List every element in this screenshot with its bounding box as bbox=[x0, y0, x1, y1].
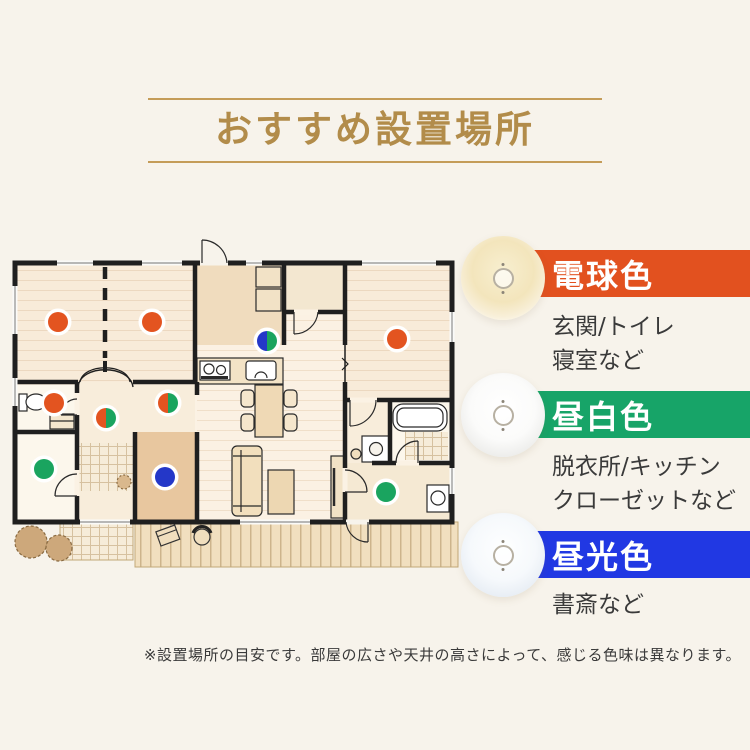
footnote: ※設置場所の目安です。部屋の広さや天井の高さによって、感じる色味は異なります。 bbox=[0, 644, 741, 665]
title-block: おすすめ設置場所 bbox=[148, 98, 602, 163]
wood-deck bbox=[135, 522, 458, 567]
back-door bbox=[202, 240, 227, 263]
desc-line: クローゼットなど bbox=[552, 484, 736, 518]
page-title: おすすめ設置場所 bbox=[215, 108, 535, 151]
washing-machine bbox=[427, 485, 449, 512]
entry-plant bbox=[117, 475, 131, 489]
light-sensor-icon bbox=[493, 405, 514, 426]
dining-chair bbox=[241, 390, 254, 407]
deck-chair bbox=[193, 527, 211, 545]
garden-bush bbox=[15, 526, 47, 558]
light-sensor-icon bbox=[493, 268, 514, 289]
cupboard bbox=[256, 289, 281, 311]
light-dot-entrance-hall bbox=[93, 405, 120, 432]
garden-bush bbox=[46, 535, 72, 561]
ceiling-light-cool-icon bbox=[461, 513, 545, 597]
desc-line: 寝室など bbox=[552, 344, 675, 378]
legend-desc: 玄関/トイレ 寝室など bbox=[552, 310, 675, 378]
legend-banner-warm: 電球色 bbox=[516, 250, 750, 297]
light-dot-bedroom-2 bbox=[139, 309, 166, 336]
light-sensor-icon bbox=[493, 545, 514, 566]
legend-label: 昼光色 bbox=[552, 532, 654, 578]
refrigerator bbox=[256, 267, 281, 287]
light-dot-study bbox=[152, 464, 179, 491]
legend-label: 昼白色 bbox=[552, 392, 654, 438]
dining-chair bbox=[284, 414, 297, 431]
bath-washing-area bbox=[405, 432, 448, 460]
kitchen-sink bbox=[246, 361, 276, 380]
desc-line: 脱衣所/キッチン bbox=[552, 450, 736, 484]
light-dot-closet bbox=[31, 456, 58, 483]
storage-closet-top bbox=[284, 265, 345, 312]
desc-line: 玄関/トイレ bbox=[552, 310, 675, 344]
legend-desc: 脱衣所/キッチン クローゼットなど bbox=[552, 450, 736, 518]
desc-line: 書斎など bbox=[552, 588, 644, 622]
dining-chair bbox=[284, 390, 297, 407]
light-dot-kitchen bbox=[254, 328, 281, 355]
legend-desc: 書斎など bbox=[552, 588, 644, 622]
light-dot-bedroom-3 bbox=[384, 326, 411, 353]
dining-chair bbox=[241, 414, 254, 431]
stool bbox=[351, 449, 361, 459]
light-dot-washroom bbox=[373, 479, 400, 506]
ceiling-light-warm-icon bbox=[461, 236, 545, 320]
light-dot-hallway bbox=[155, 390, 182, 417]
coffee-table bbox=[268, 470, 294, 514]
outdoor-area bbox=[15, 522, 458, 567]
legend-banner-neutral: 昼白色 bbox=[516, 391, 750, 438]
light-dot-bedroom-1 bbox=[45, 309, 72, 336]
ceiling-light-neutral-icon bbox=[461, 373, 545, 457]
legend-banner-cool: 昼光色 bbox=[516, 531, 750, 578]
dining-table bbox=[255, 385, 283, 437]
legend-label: 電球色 bbox=[552, 251, 654, 297]
recommended-placement-infographic: おすすめ設置場所 bbox=[0, 0, 750, 750]
light-dot-toilet bbox=[41, 390, 68, 417]
floorplan bbox=[0, 230, 470, 620]
